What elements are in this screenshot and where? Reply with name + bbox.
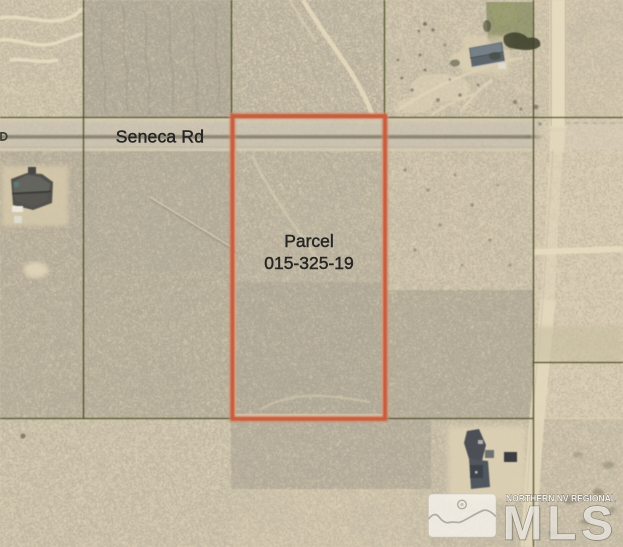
svg-text:MLS: MLS [503,497,618,547]
svg-text:015-325-19: 015-325-19 [264,253,354,273]
svg-text:Parcel: Parcel [284,231,334,251]
svg-text:Seneca Rd: Seneca Rd [116,127,204,147]
